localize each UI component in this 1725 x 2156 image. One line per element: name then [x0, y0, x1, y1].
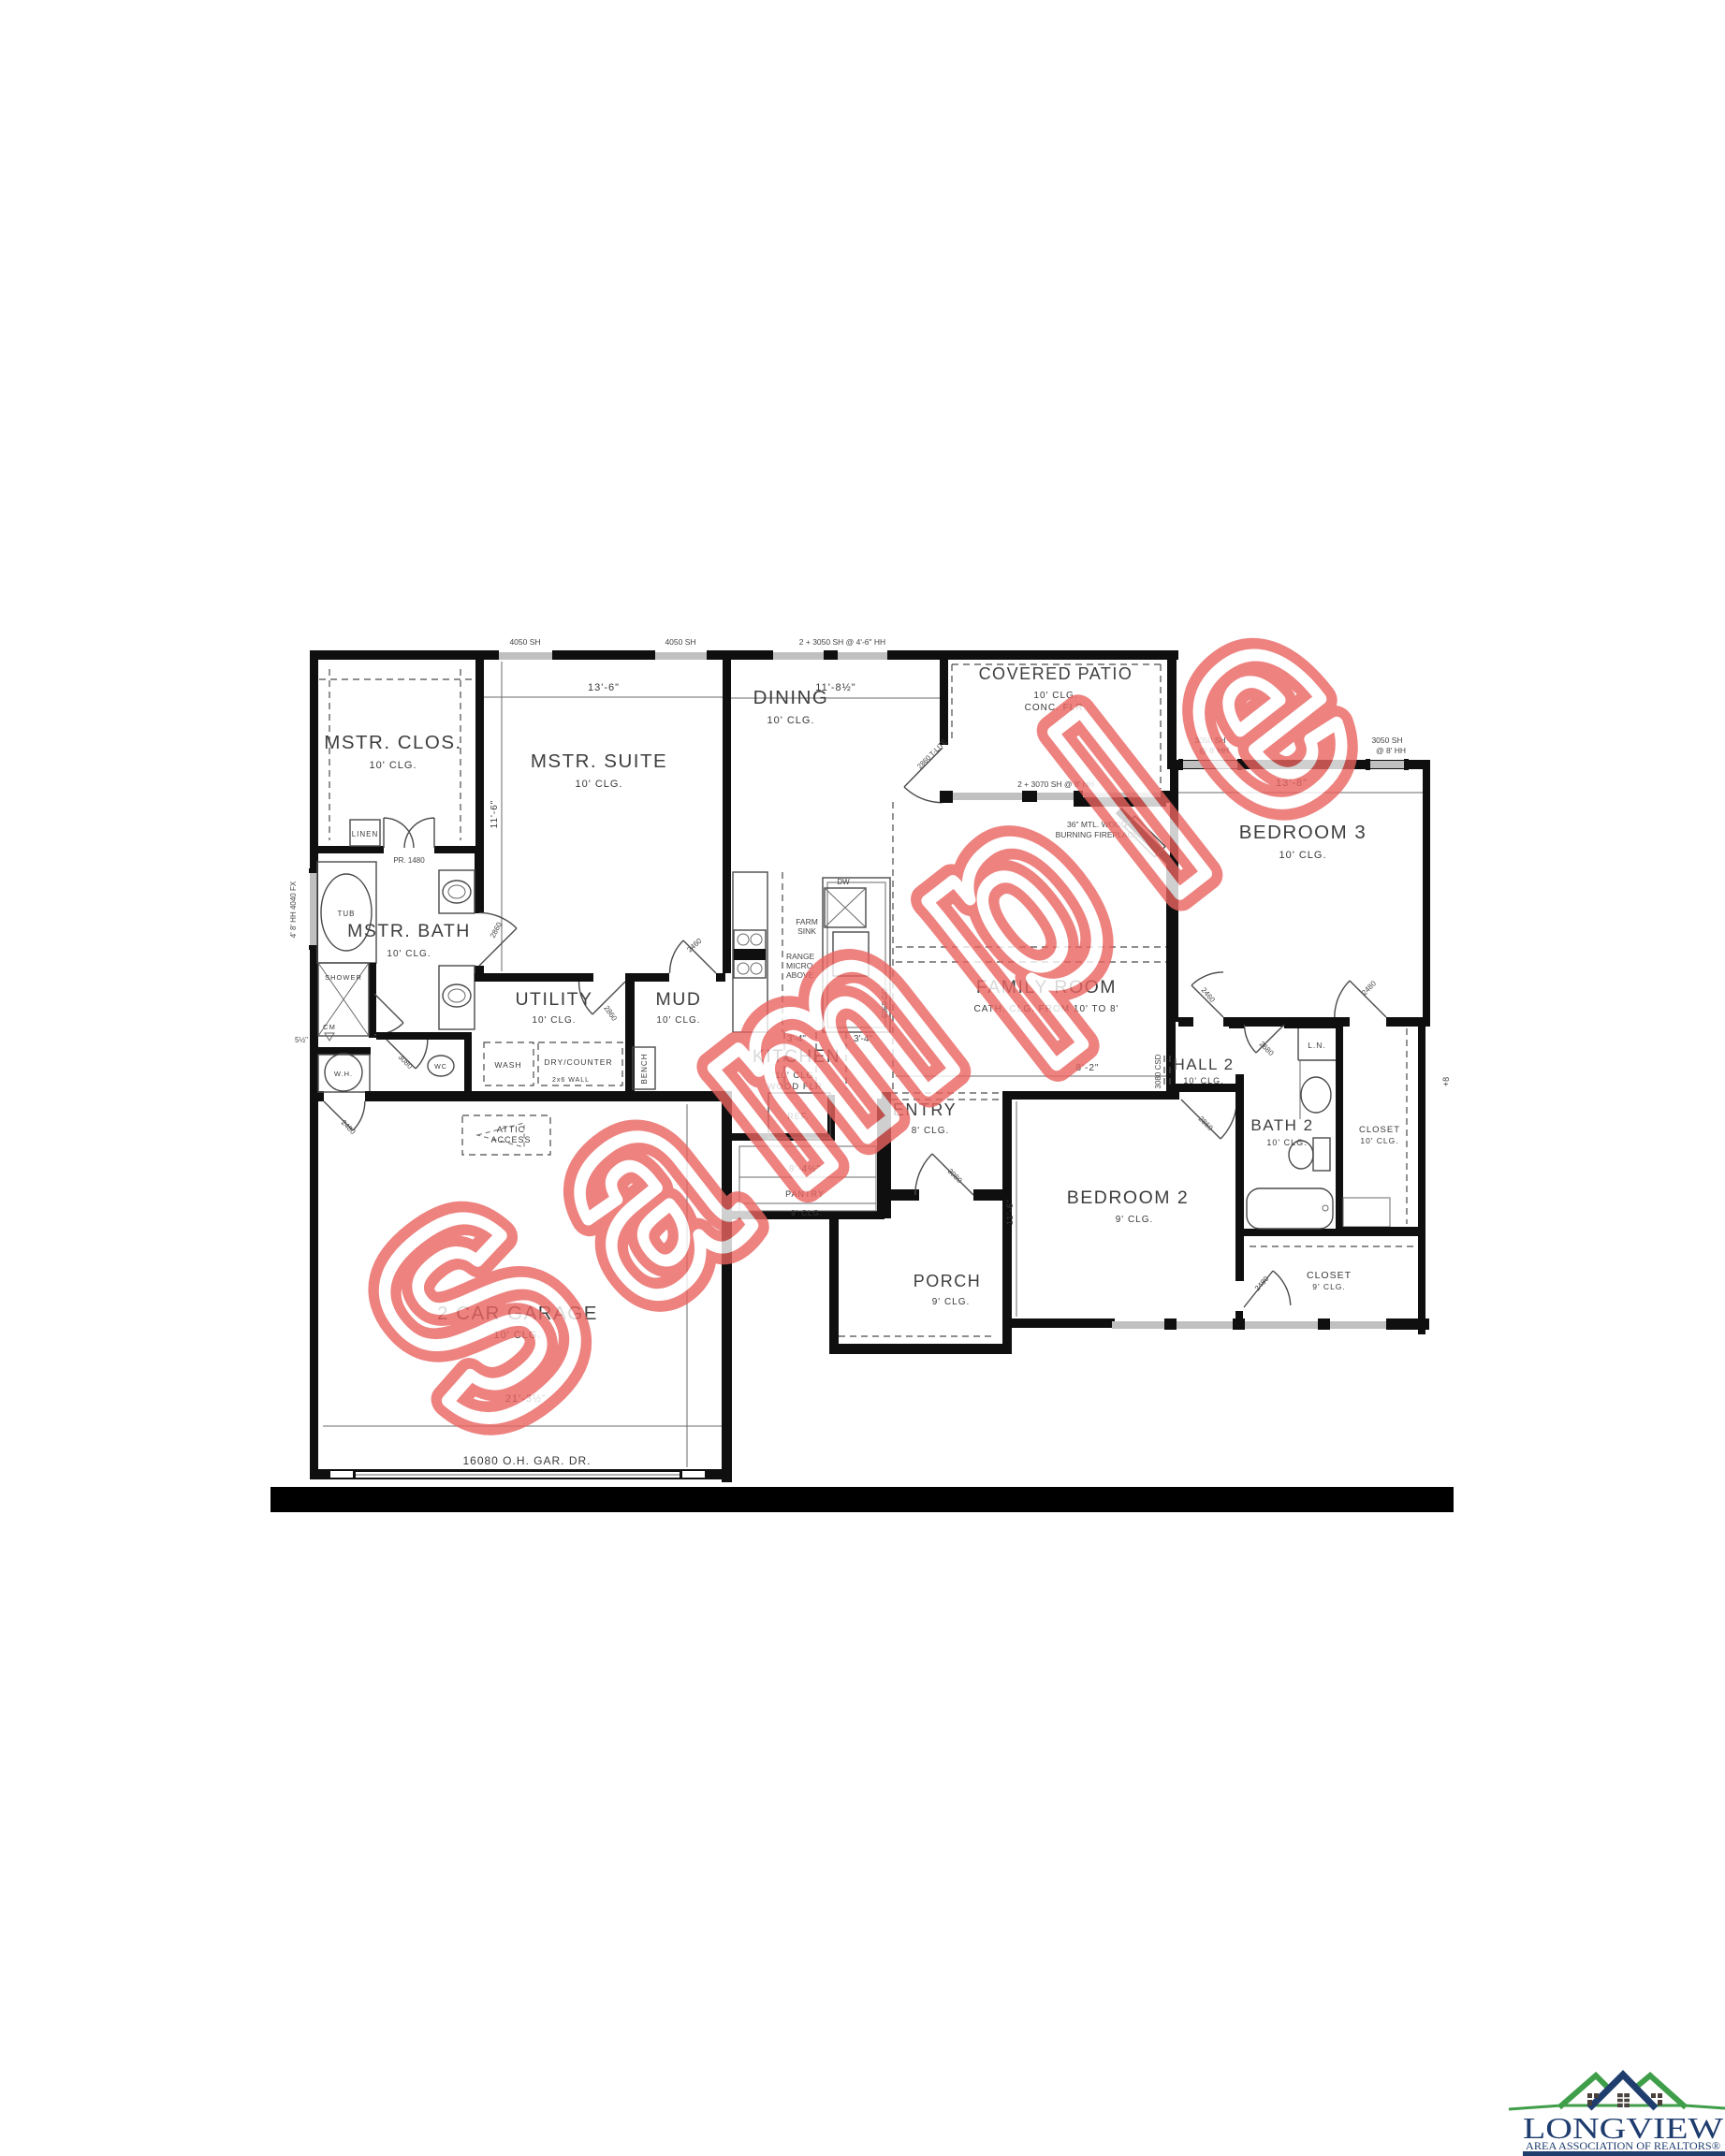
svg-text:9' CLG.: 9' CLG.	[1312, 1282, 1346, 1291]
svg-text:MSTR. SUITE: MSTR. SUITE	[531, 750, 667, 772]
svg-text:@ 8' HH: @ 8' HH	[1376, 746, 1406, 755]
svg-text:10' CLG.: 10' CLG.	[575, 779, 622, 790]
svg-text:MSTR. BATH: MSTR. BATH	[347, 921, 471, 941]
svg-text:4' 8' HH 4040 FX: 4' 8' HH 4040 FX	[289, 881, 298, 938]
svg-text:10' CLG.: 10' CLG.	[1360, 1136, 1398, 1145]
svg-text:W.H.: W.H.	[334, 1070, 353, 1078]
svg-text:3050 SH: 3050 SH	[1371, 736, 1402, 745]
svg-text:2 + 3050 SH @ 4'-6" HH: 2 + 3050 SH @ 4'-6" HH	[799, 637, 885, 647]
svg-text:11'-6": 11'-6"	[1005, 1199, 1015, 1225]
svg-text:AREA ASSOCIATION OF REALTORS®: AREA ASSOCIATION OF REALTORS®	[1526, 2139, 1720, 2152]
svg-text:WASH: WASH	[494, 1060, 521, 1070]
svg-text:PORCH: PORCH	[914, 1272, 982, 1290]
svg-text:11'-6": 11'-6"	[490, 800, 500, 829]
svg-text:13'-6": 13'-6"	[588, 682, 620, 693]
svg-text:5½": 5½"	[295, 1036, 308, 1044]
svg-text:DW: DW	[837, 878, 850, 886]
svg-text:BATH 2: BATH 2	[1250, 1116, 1313, 1134]
svg-text:10' CLG.: 10' CLG.	[767, 715, 814, 726]
svg-text:10' CLG.: 10' CLG.	[387, 949, 431, 959]
svg-text:CLOSET: CLOSET	[1307, 1270, 1352, 1281]
svg-text:BENCH: BENCH	[640, 1053, 649, 1084]
svg-text:UTILITY: UTILITY	[515, 989, 592, 1010]
svg-text:L.N.: L.N.	[1308, 1041, 1326, 1050]
svg-text:8'-2": 8'-2"	[1076, 1063, 1100, 1073]
svg-text:10' CLG.: 10' CLG.	[369, 760, 417, 771]
svg-text:4050 SH: 4050 SH	[665, 637, 695, 647]
svg-text:HALL 2: HALL 2	[1173, 1056, 1234, 1073]
svg-text:LINEN: LINEN	[352, 830, 379, 838]
svg-text:DINING: DINING	[753, 687, 829, 708]
svg-text:MSTR. CLOS.: MSTR. CLOS.	[324, 732, 462, 753]
svg-text:4050 SH: 4050 SH	[509, 637, 540, 647]
svg-text:TUB: TUB	[338, 910, 356, 918]
svg-text:CM: CM	[323, 1023, 336, 1031]
svg-text:10' CLG.: 10' CLG.	[1183, 1076, 1223, 1085]
svg-text:CLOSET: CLOSET	[1359, 1125, 1400, 1135]
svg-text:3080 CSD: 3080 CSD	[1154, 1054, 1162, 1088]
svg-text:SHOWER: SHOWER	[325, 973, 362, 982]
svg-text:WC: WC	[434, 1064, 447, 1071]
svg-text:9' CLG.: 9' CLG.	[932, 1297, 971, 1307]
svg-text:BEDROOM 2: BEDROOM 2	[1067, 1187, 1190, 1208]
svg-text:10' CLG.: 10' CLG.	[532, 1015, 576, 1026]
svg-text:+8: +8	[1441, 1077, 1451, 1086]
svg-text:PR. 1480: PR. 1480	[393, 856, 425, 865]
svg-text:10' CLG.: 10' CLG.	[1266, 1138, 1307, 1147]
svg-text:9' CLG.: 9' CLG.	[1116, 1215, 1154, 1225]
